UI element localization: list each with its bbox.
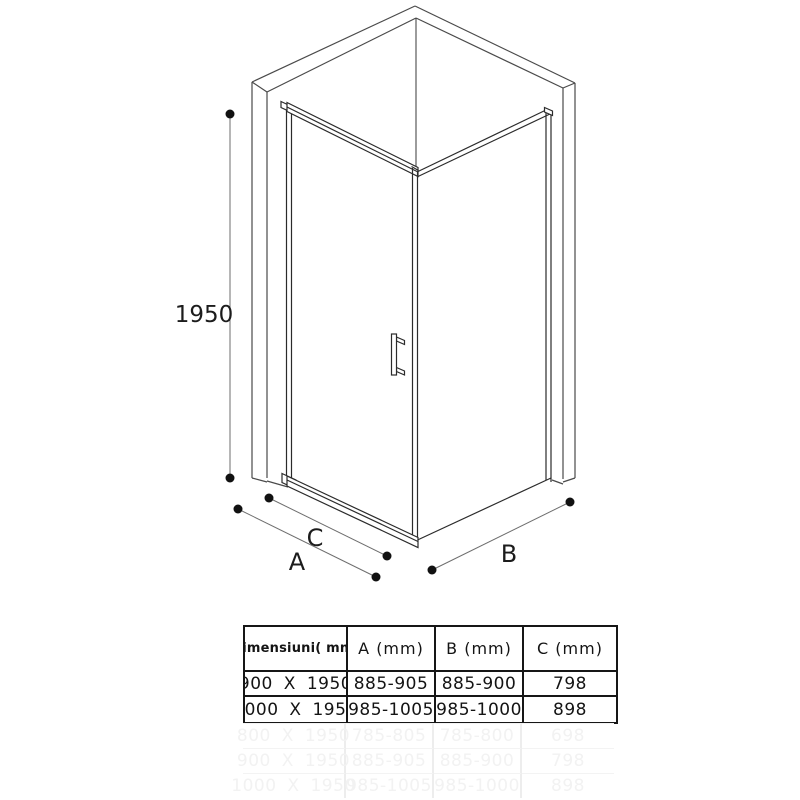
row1-c: 798: [524, 672, 616, 697]
height-dimension: 1950: [175, 110, 235, 483]
dim-dot: [383, 552, 392, 561]
width-a-label: A: [289, 548, 306, 576]
row2-b: 985-1000: [436, 697, 524, 722]
dim-dot: [265, 494, 274, 503]
ghost-row1-b: 785-800: [434, 723, 522, 748]
depth-b-label: B: [501, 540, 517, 568]
dim-dot: [226, 110, 235, 119]
dim-dot: [372, 573, 381, 582]
shower-enclosure-spec-sheet: 1950 C A B Dimensiuni( mm) A (mm) B (mm)…: [0, 0, 800, 800]
ghost-row2-b: 885-900: [434, 748, 522, 773]
ghost-row2-dimensions: 900 X 1950: [243, 748, 346, 773]
dim-dot: [226, 474, 235, 483]
ghost-row3-c: 898: [522, 773, 614, 798]
door-handle: [392, 334, 405, 375]
enclosure-isometric-diagram: 1950 C A B: [0, 0, 800, 620]
row2-dimensions: 1000 X 1950: [245, 697, 348, 722]
row2-c: 898: [524, 697, 616, 722]
dimension-spec-table: Dimensiuni( mm) A (mm) B (mm) C (mm) 900…: [243, 625, 618, 724]
row1-b: 885-900: [436, 672, 524, 697]
ghost-row2-a: 885-905: [346, 748, 434, 773]
ghost-row3-a: 985-1005: [346, 773, 434, 798]
ghost-row1-c: 698: [522, 723, 614, 748]
ghost-row2-c: 798: [522, 748, 614, 773]
col-header-dimensions: Dimensiuni( mm): [245, 627, 348, 672]
faded-ghost-rows: 800 X 1950 785-805 785-800 698 900 X 195…: [243, 723, 618, 798]
row1-dimensions: 900 X 1950: [245, 672, 348, 697]
hinged-door: [281, 102, 419, 548]
dim-dot: [428, 566, 437, 575]
ghost-row1-dimensions: 800 X 1950: [243, 723, 346, 748]
ghost-row3-dimensions: 1000 X 1950: [243, 773, 346, 798]
width-c-label: C: [307, 524, 324, 552]
col-header-b: B (mm): [436, 627, 524, 672]
ghost-row3-b: 985-1000: [434, 773, 522, 798]
ghost-row1-a: 785-805: [346, 723, 434, 748]
dim-dot: [566, 498, 575, 507]
fixed-side-panel: [418, 108, 553, 541]
depth-b-dimension: B: [428, 498, 575, 575]
height-dimension-label: 1950: [175, 302, 234, 328]
col-header-c: C (mm): [524, 627, 616, 672]
col-header-a: A (mm): [348, 627, 436, 672]
left-wall: [252, 6, 416, 487]
dim-dot: [234, 505, 243, 514]
row2-a: 985-1005: [348, 697, 436, 722]
row1-a: 885-905: [348, 672, 436, 697]
